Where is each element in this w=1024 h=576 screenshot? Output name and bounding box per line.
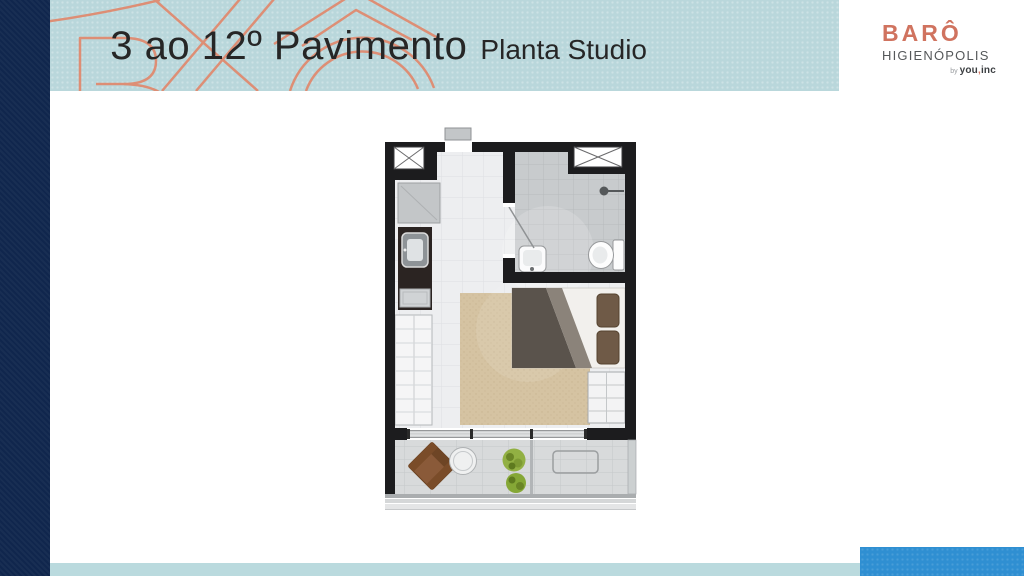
wardrobe bbox=[395, 315, 432, 425]
pillow bbox=[597, 294, 619, 327]
footer-blue-block bbox=[860, 547, 1024, 576]
header-band: 3 ao 12º Pavimento Planta Studio bbox=[50, 0, 839, 91]
double-bed bbox=[512, 288, 625, 368]
bathroom-wall-upper bbox=[503, 152, 515, 203]
left-navy-bar bbox=[0, 0, 50, 576]
vent-shaft-right bbox=[574, 147, 622, 167]
wall-right bbox=[625, 142, 636, 440]
logo-location-text: HIGIENÓPOLIS bbox=[882, 49, 996, 62]
toilet-bowl-inner bbox=[593, 247, 608, 264]
kitchen-sink-basin bbox=[407, 239, 423, 261]
bathroom-wall-bottom bbox=[503, 272, 636, 283]
potted-plant bbox=[503, 449, 526, 472]
shower-head-icon bbox=[600, 187, 609, 196]
door-jamb bbox=[503, 203, 515, 207]
page-title: 3 ao 12º Pavimento Planta Studio bbox=[110, 24, 647, 69]
wall-bottom-left bbox=[385, 428, 407, 440]
decorative-curve bbox=[50, 0, 160, 22]
wall-left bbox=[385, 142, 395, 494]
title-main: 3 ao 12º Pavimento bbox=[110, 24, 467, 69]
nightstand bbox=[588, 372, 625, 423]
faucet bbox=[404, 249, 407, 252]
slide: 3 ao 12º Pavimento Planta Studio BARÔ HI… bbox=[0, 0, 1024, 576]
balcony-side-wall bbox=[628, 440, 636, 494]
logo-byline: by you,inc bbox=[882, 66, 996, 76]
bathroom-sink-basin bbox=[523, 250, 542, 266]
floorplan bbox=[378, 126, 640, 510]
balcony-divider bbox=[530, 440, 533, 494]
balcony-railing-glass bbox=[385, 499, 636, 503]
brand-logo: BARÔ HIGIENÓPOLIS by you,inc bbox=[882, 22, 996, 76]
footer-light-bar bbox=[50, 563, 860, 576]
vent-shaft-left bbox=[394, 147, 424, 169]
pillow bbox=[597, 331, 619, 364]
balcony-railing bbox=[385, 494, 636, 498]
wall-bottom-right bbox=[587, 428, 636, 440]
sink-faucet bbox=[530, 267, 534, 271]
title-sub: Planta Studio bbox=[480, 34, 647, 66]
logo-company: you,inc bbox=[960, 65, 996, 76]
potted-plant bbox=[506, 473, 526, 493]
logo-brand-text: BARÔ bbox=[882, 22, 996, 45]
sliding-door bbox=[407, 429, 587, 439]
toilet-tank bbox=[613, 240, 624, 270]
logo-by-label: by bbox=[950, 68, 957, 75]
entry-door bbox=[445, 128, 471, 140]
door-jamb bbox=[503, 254, 515, 258]
